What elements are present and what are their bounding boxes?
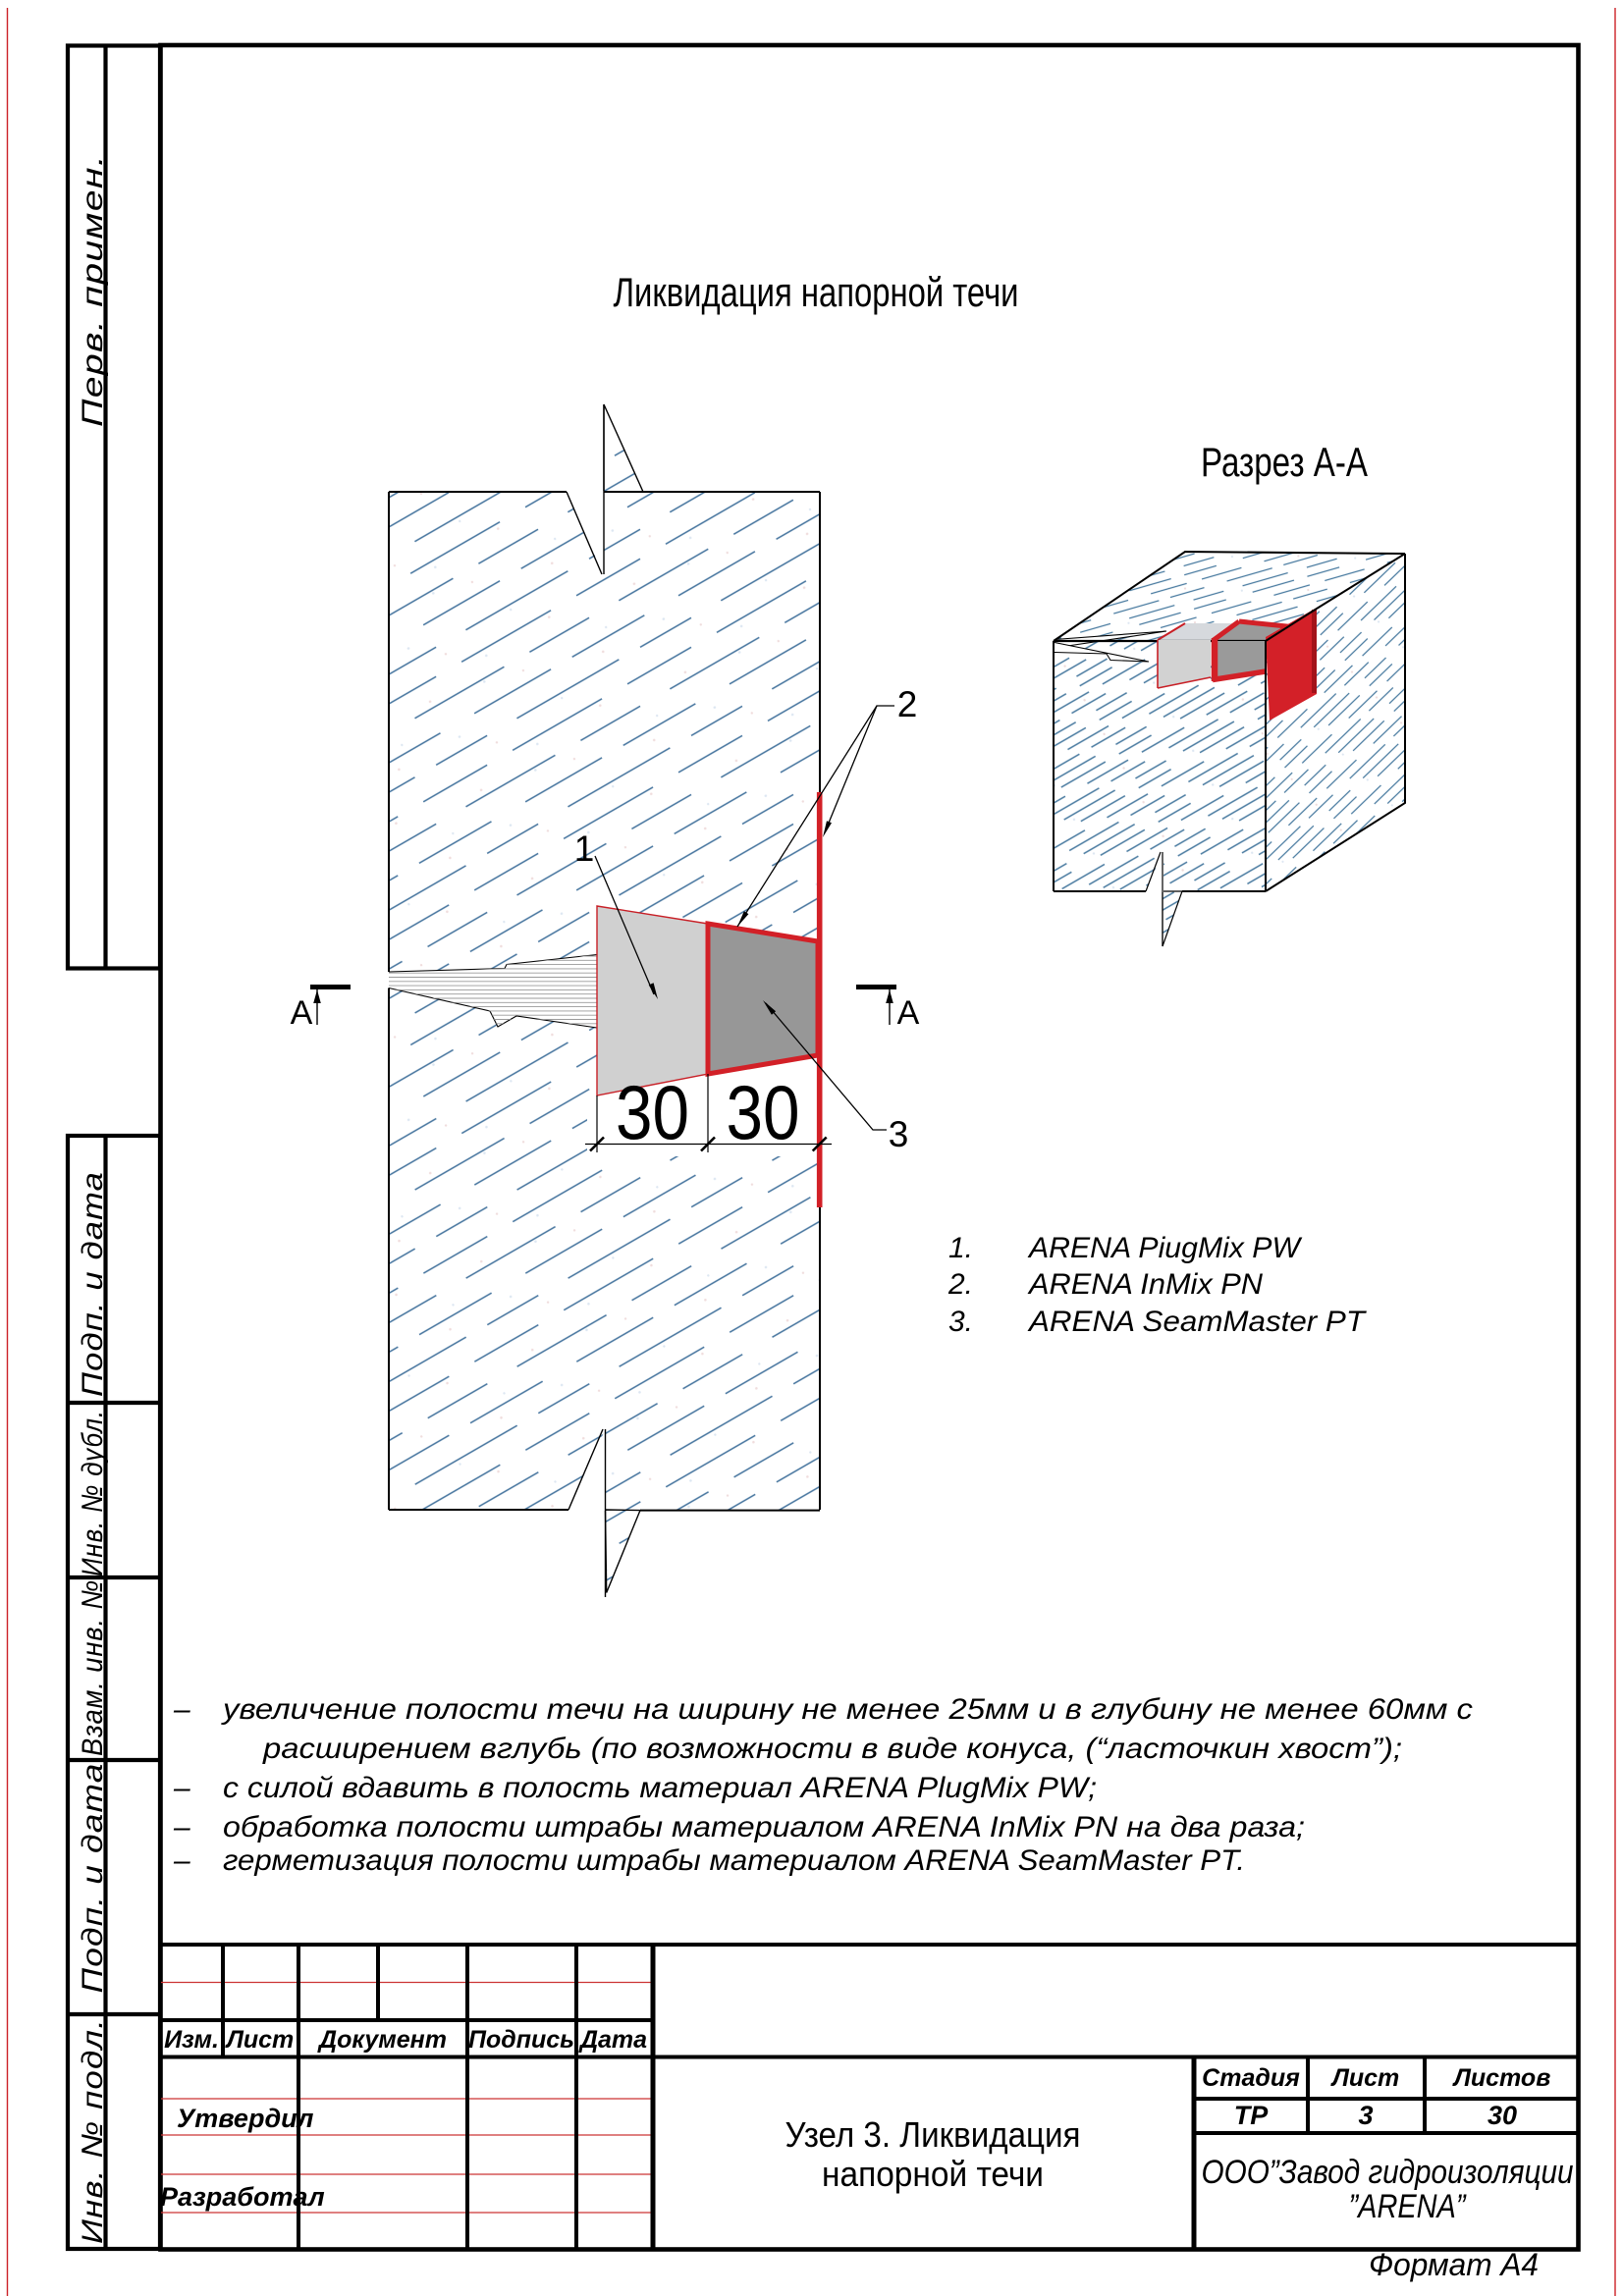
svg-text:обработка полости штрабы матер: обработка полости штрабы материалом AREN… (223, 1811, 1305, 1843)
svg-text:3: 3 (1358, 2101, 1373, 2130)
svg-text:Узел 3. Ликвидация: Узел 3. Ликвидация (785, 2114, 1081, 2155)
svg-text:Формат А4: Формат А4 (1369, 2247, 1539, 2282)
svg-text:Листов: Листов (1452, 2064, 1551, 2092)
svg-text:с силой вдавить в полость мате: с силой вдавить в полость материал ARENA… (223, 1772, 1097, 1804)
svg-text:А: А (291, 994, 313, 1032)
svg-text:А: А (897, 994, 920, 1032)
svg-text:Подп. и дата: Подп. и дата (77, 1763, 109, 1994)
svg-text:ООО”Завод гидроизоляции: ООО”Завод гидроизоляции (1202, 2154, 1574, 2191)
svg-text:1: 1 (574, 828, 595, 869)
svg-text:Лист: Лист (1330, 2064, 1400, 2092)
svg-text:–: – (173, 1693, 190, 1726)
svg-text:2.: 2. (947, 1268, 973, 1301)
svg-text:ARENA InMix PN: ARENA InMix PN (1027, 1268, 1263, 1301)
svg-text:Подп. и дата: Подп. и дата (77, 1171, 109, 1397)
svg-text:Лист: Лист (225, 2026, 295, 2054)
svg-text:3: 3 (889, 1114, 909, 1154)
svg-text:напорной течи: напорной течи (822, 2154, 1044, 2194)
svg-text:–: – (173, 1844, 190, 1877)
svg-text:расширением вглубь (по возможн: расширением вглубь (по возможности в вид… (262, 1733, 1402, 1765)
svg-text:Подпись: Подпись (468, 2026, 574, 2054)
svg-text:2: 2 (897, 684, 918, 724)
svg-text:Перв. примен.: Перв. примен. (77, 154, 109, 427)
svg-text:Инв. № подл.: Инв. № подл. (77, 2018, 109, 2244)
svg-text:Разработал: Разработал (160, 2182, 325, 2212)
svg-text:Дата: Дата (578, 2026, 647, 2054)
svg-text:увеличение полости течи на шир: увеличение полости течи на ширину не мен… (221, 1693, 1473, 1726)
svg-text:Инв. № дубл.: Инв. № дубл. (77, 1410, 109, 1576)
svg-text:герметизация полости штрабы ма: герметизация полости штрабы материалом A… (223, 1844, 1245, 1877)
svg-text:ТР: ТР (1234, 2101, 1269, 2130)
svg-text:3.: 3. (948, 1306, 973, 1338)
svg-text:1.: 1. (948, 1232, 973, 1264)
svg-text:Ликвидация напорной течи: Ликвидация напорной течи (614, 269, 1019, 315)
svg-text:Утвердил: Утвердил (177, 2104, 314, 2133)
svg-text:30: 30 (616, 1069, 689, 1155)
svg-text:–: – (173, 1811, 190, 1843)
svg-text:Разрез А-А: Разрез А-А (1201, 439, 1368, 485)
svg-text:Взам. инв. №: Взам. инв. № (77, 1579, 109, 1756)
svg-text:30: 30 (1488, 2101, 1517, 2130)
svg-text:Документ: Документ (317, 2026, 447, 2054)
svg-text:ARENA SeamMaster PT: ARENA SeamMaster PT (1027, 1306, 1368, 1338)
svg-text:–: – (173, 1772, 190, 1804)
svg-text:30: 30 (727, 1069, 800, 1155)
svg-text:Стадия: Стадия (1202, 2064, 1300, 2092)
svg-text:ARENA PiugMix PW: ARENA PiugMix PW (1027, 1232, 1303, 1264)
svg-text:”ARENA”: ”ARENA” (1349, 2188, 1467, 2225)
svg-text:Изм.: Изм. (164, 2026, 219, 2054)
